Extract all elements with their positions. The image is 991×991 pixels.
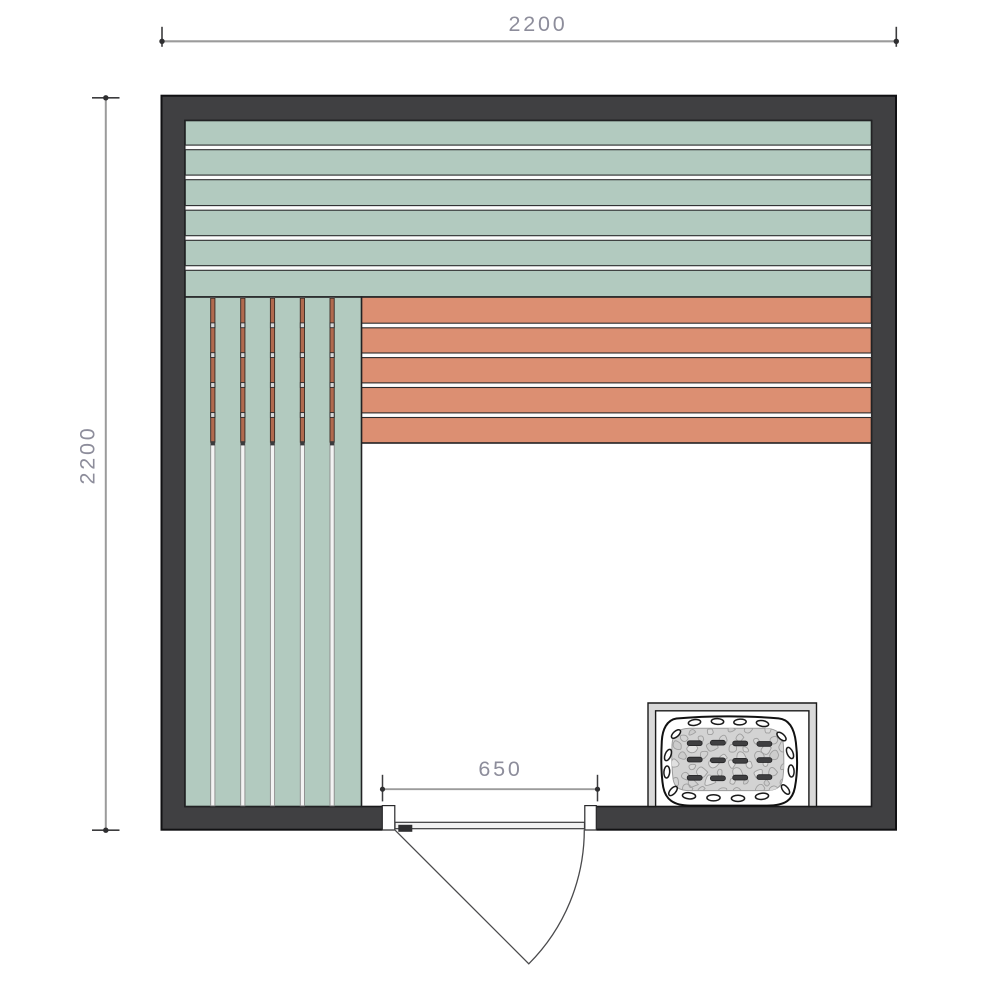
svg-text:2200: 2200	[75, 425, 99, 484]
svg-text:650: 650	[478, 757, 522, 781]
svg-text:2200: 2200	[508, 12, 567, 36]
